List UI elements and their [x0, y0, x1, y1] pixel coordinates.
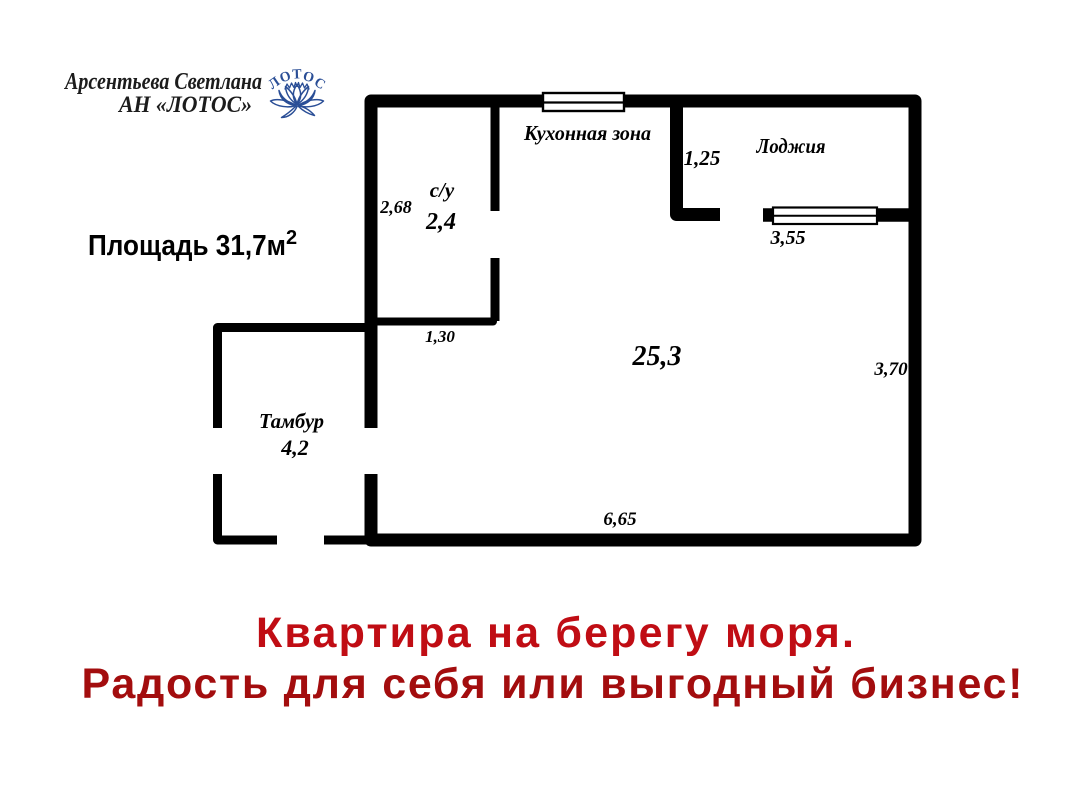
svg-text:Лоджия: Лоджия	[756, 134, 826, 158]
svg-text:Радость для себя или выгодный: Радость для себя или выгодный бизнес!	[82, 660, 1023, 708]
svg-text:3,55: 3,55	[770, 227, 806, 249]
svg-text:4,2: 4,2	[280, 435, 309, 460]
svg-text:Кухонная зона: Кухонная зона	[523, 121, 651, 145]
svg-text:1,25: 1,25	[684, 146, 721, 170]
svg-text:Площадь 31,7м2: Площадь 31,7м2	[88, 227, 297, 262]
svg-text:1,30: 1,30	[425, 327, 455, 346]
svg-text:АН «ЛОТОС»: АН «ЛОТОС»	[117, 92, 252, 117]
svg-text:Т: Т	[292, 67, 303, 82]
svg-text:Тамбур: Тамбур	[259, 409, 324, 433]
svg-text:Квартира на берегу моря.: Квартира на берегу моря.	[256, 609, 854, 657]
svg-text:с/у: с/у	[430, 178, 455, 202]
svg-text:2,4: 2,4	[425, 209, 456, 235]
svg-text:3,70: 3,70	[873, 359, 908, 380]
svg-text:6,65: 6,65	[603, 509, 637, 530]
svg-text:2,68: 2,68	[379, 197, 412, 217]
svg-text:25,3: 25,3	[632, 341, 682, 372]
